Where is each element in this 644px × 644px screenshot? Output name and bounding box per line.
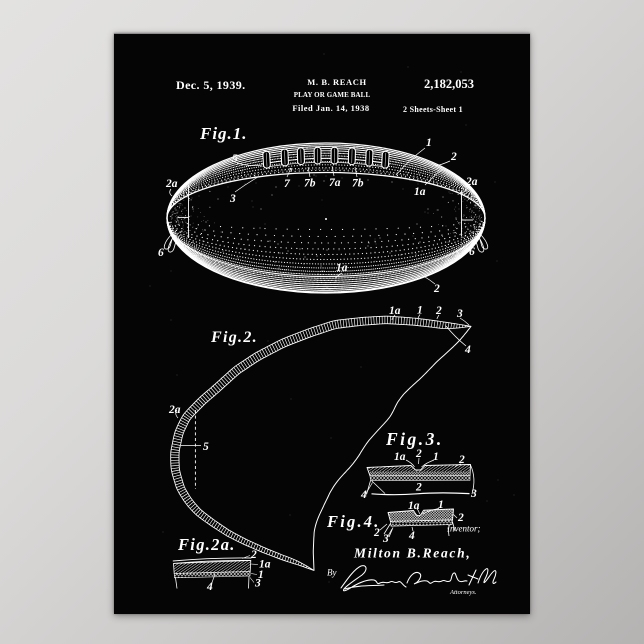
svg-text:3: 3 — [254, 578, 261, 590]
svg-text:3: 3 — [382, 533, 389, 545]
svg-text:1a: 1a — [336, 262, 348, 274]
svg-text:6: 6 — [469, 246, 475, 258]
svg-text:4: 4 — [408, 530, 415, 542]
svg-text:Fig.2.: Fig.2. — [210, 329, 258, 346]
svg-text:4: 4 — [360, 489, 367, 501]
svg-text:2: 2 — [450, 151, 457, 163]
svg-text:By: By — [327, 568, 337, 578]
svg-text:2: 2 — [457, 512, 464, 524]
svg-text:2: 2 — [373, 527, 380, 539]
svg-text:1a: 1a — [414, 186, 426, 198]
svg-text:Fig.4.: Fig.4. — [326, 512, 381, 531]
svg-text:2: 2 — [415, 482, 422, 494]
svg-text:2a: 2a — [465, 176, 478, 188]
svg-text:2a: 2a — [165, 178, 178, 190]
svg-text:4: 4 — [206, 581, 213, 593]
svg-text:2: 2 — [415, 448, 422, 460]
svg-text:Fig.2a.: Fig.2a. — [177, 535, 236, 554]
svg-text:3: 3 — [470, 488, 477, 500]
svg-text:Inventor;: Inventor; — [446, 524, 481, 534]
svg-text:2: 2 — [433, 283, 440, 295]
svg-text:Attorneys.: Attorneys. — [449, 589, 477, 596]
svg-text:7b: 7b — [304, 178, 316, 190]
svg-text:2: 2 — [458, 454, 465, 466]
svg-text:4: 4 — [464, 344, 471, 356]
svg-text:1a: 1a — [394, 451, 406, 463]
svg-text:1: 1 — [433, 451, 439, 463]
svg-text:Milton B.Reach,: Milton B.Reach, — [353, 546, 471, 561]
svg-text:7a: 7a — [329, 177, 341, 189]
svg-text:7b: 7b — [352, 178, 364, 190]
svg-text:Fig.3.: Fig.3. — [385, 429, 444, 449]
svg-text:3: 3 — [456, 308, 463, 320]
svg-text:1: 1 — [438, 499, 444, 511]
svg-text:5: 5 — [203, 441, 209, 453]
svg-text:2a: 2a — [168, 404, 181, 416]
svg-text:Fig.1.: Fig.1. — [199, 124, 248, 143]
svg-text:6: 6 — [158, 247, 164, 259]
svg-text:2: 2 — [250, 549, 257, 561]
svg-text:1: 1 — [426, 137, 432, 149]
svg-text:3: 3 — [229, 193, 236, 205]
